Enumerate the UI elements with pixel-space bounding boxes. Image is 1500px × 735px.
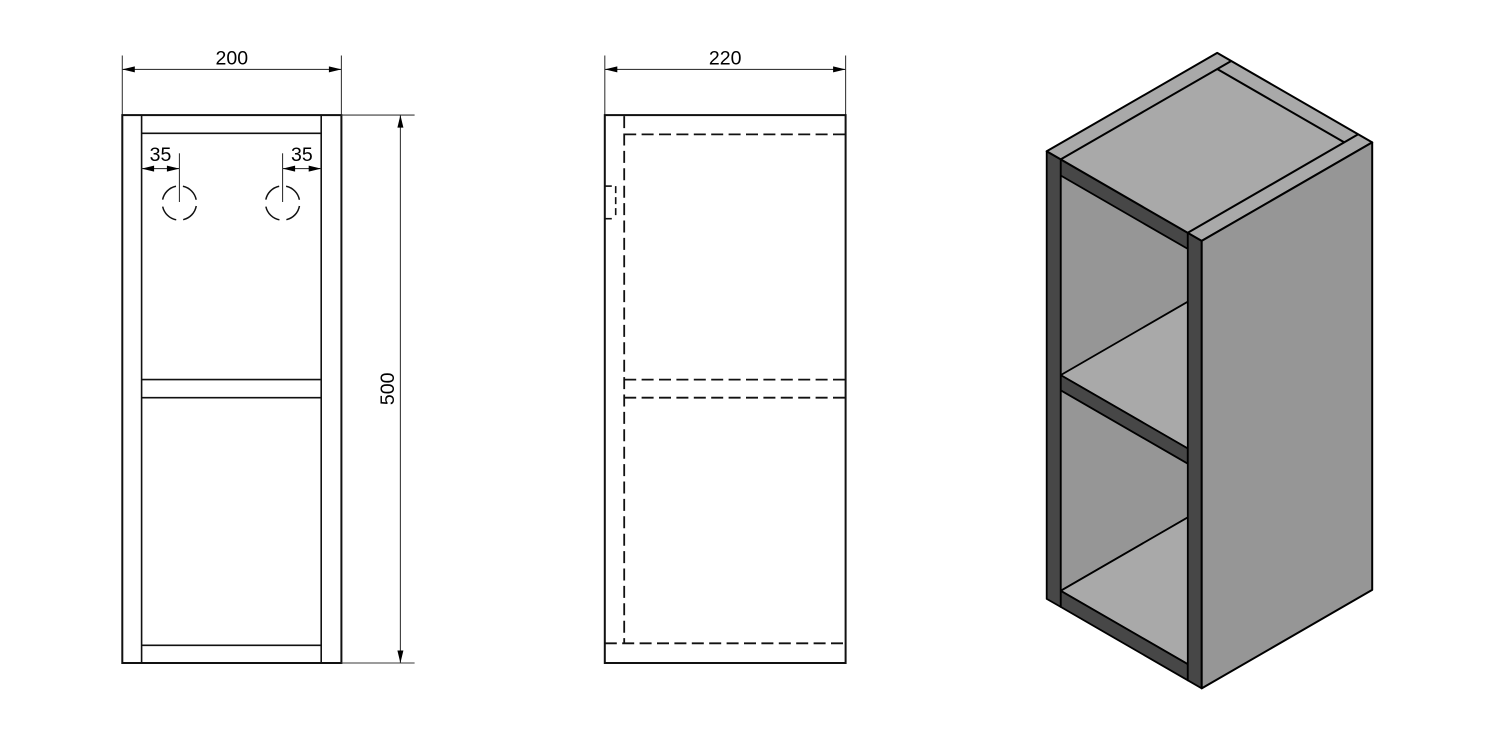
svg-text:220: 220 <box>709 48 742 70</box>
svg-text:35: 35 <box>150 144 172 166</box>
svg-text:200: 200 <box>216 48 249 70</box>
svg-text:35: 35 <box>291 144 313 166</box>
svg-text:500: 500 <box>377 372 399 405</box>
